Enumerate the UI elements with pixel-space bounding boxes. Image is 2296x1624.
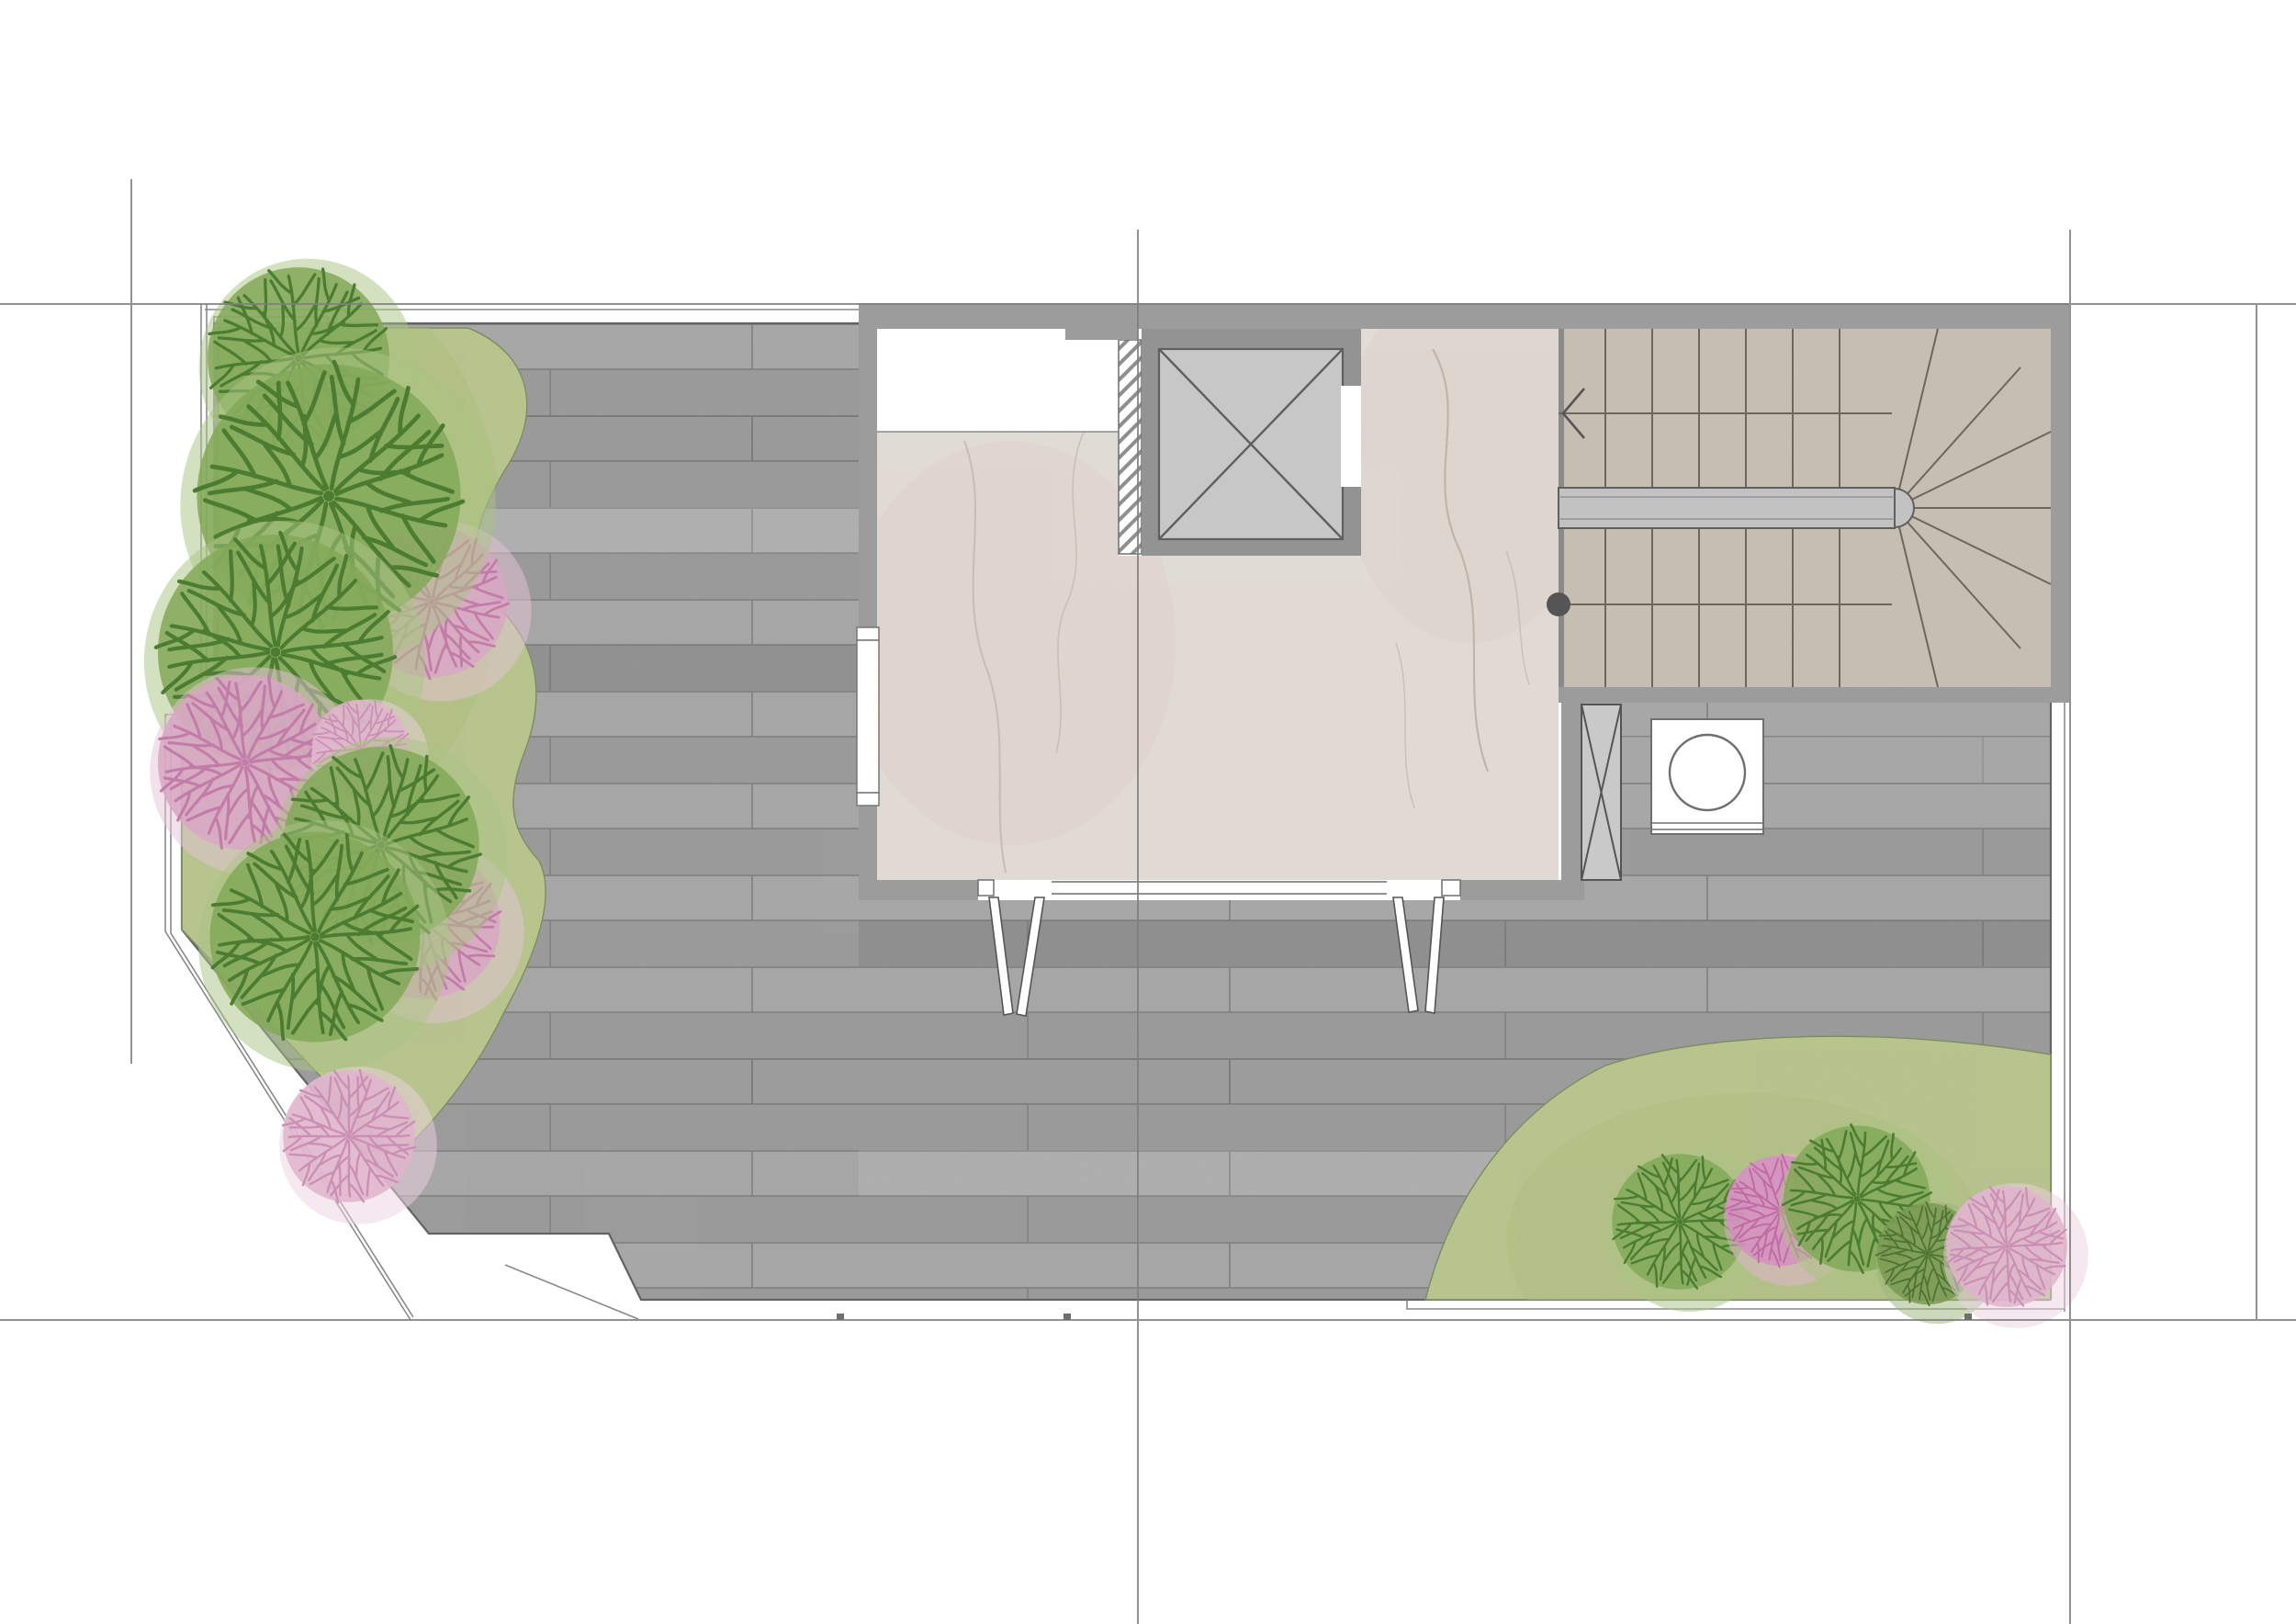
braced-duct	[1581, 705, 1621, 880]
elevator-door-opening	[1341, 386, 1361, 487]
wall-left	[859, 323, 877, 900]
tree-green	[198, 820, 450, 1072]
stair-divider	[1559, 488, 1914, 528]
survey-tick	[837, 1314, 844, 1320]
wall-top-step	[1065, 303, 1138, 340]
survey-ticks	[837, 1314, 1972, 1320]
wall-stair-bottom	[1559, 687, 2069, 703]
tree-pink	[1943, 1183, 2088, 1328]
interior-room	[877, 329, 1119, 432]
door-jamb-left	[978, 880, 994, 896]
wall-bottom-left	[859, 880, 978, 900]
wall-top	[859, 303, 2069, 329]
site-plan-canvas	[0, 0, 2296, 1624]
washing-machine	[1651, 719, 1763, 834]
window-left-wall	[857, 627, 879, 806]
wall-stair-right	[2051, 338, 2069, 703]
survey-tick	[1964, 1314, 1972, 1320]
survey-tick	[1064, 1314, 1071, 1320]
door-jamb-right	[1442, 880, 1460, 896]
elevator-shaft	[1142, 329, 1361, 556]
staircase	[1547, 329, 2051, 687]
parapet-diagonal-outer	[505, 1265, 638, 1319]
roof-terrace-plan	[0, 0, 2296, 1624]
stair-start-dot	[1547, 592, 1570, 616]
washer-drum-icon	[1670, 735, 1745, 810]
